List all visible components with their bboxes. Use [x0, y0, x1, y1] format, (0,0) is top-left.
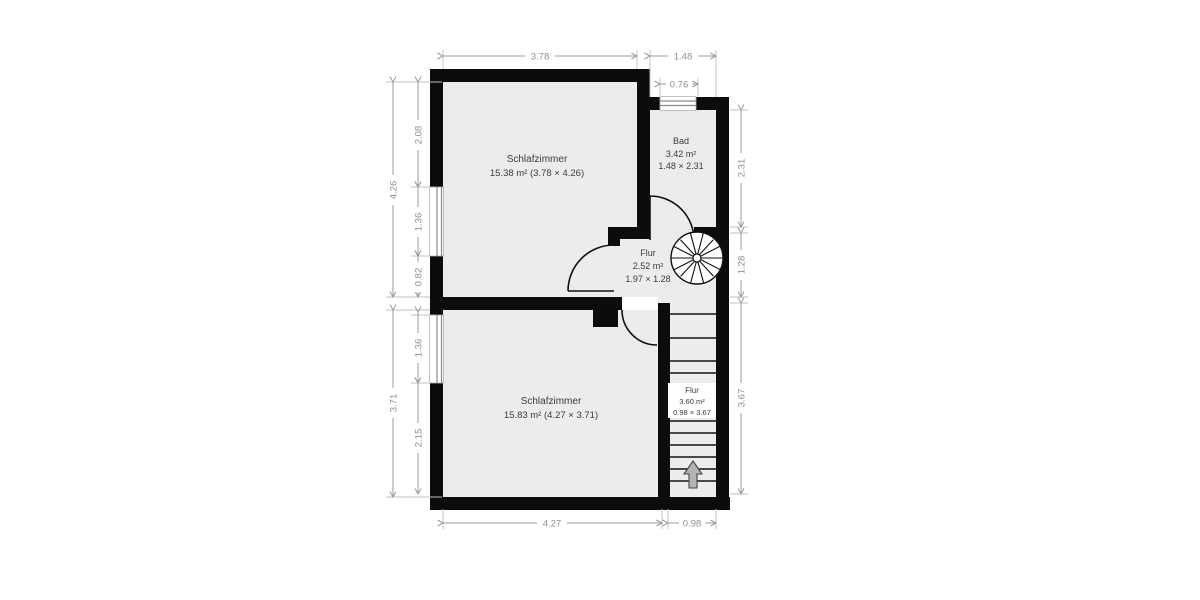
label-bad-dims: 1.48 × 2.31	[658, 161, 703, 171]
dim-left-bottom-segment: 2.15	[414, 429, 425, 448]
label-flur-stairs-dims: 0.98 × 3.67	[673, 408, 711, 417]
dim-bottom-stairs-width: 0.98	[683, 519, 702, 530]
dim-bad-window-width: 0.76	[670, 80, 689, 91]
label-schlafzimmer-bottom-details: 15.83 m² (4.27 × 3.71)	[504, 410, 598, 421]
dim-left-outer-top: 4.26	[389, 181, 400, 200]
window-left-bottom	[430, 315, 444, 383]
label-schlafzimmer-top-details: 15.38 m² (3.78 × 4.26)	[490, 168, 584, 179]
dim-left-window-top: 1.36	[414, 213, 425, 232]
label-flur-dims: 1.97 × 1.28	[625, 274, 670, 284]
label-flur-stairs-name: Flur	[685, 386, 699, 395]
dim-top-room-width: 3.78	[531, 52, 550, 63]
chimney-block	[593, 300, 618, 327]
dim-left-window-bottom: 1.36	[414, 339, 425, 358]
floorplan-page: Schlafzimmer 15.38 m² (3.78 × 4.26) Bad …	[0, 0, 1200, 600]
floor-schlafzimmer-top	[443, 82, 637, 297]
dim-right-bad-height: 2.31	[737, 159, 748, 178]
label-flur-stairs-area: 3.60 m²	[679, 397, 705, 406]
dim-left-top-segment: 2.08	[414, 126, 425, 145]
floorplan-drawing: Schlafzimmer 15.38 m² (3.78 × 4.26) Bad …	[0, 0, 1200, 600]
dim-right-flur-height: 1.28	[737, 256, 748, 275]
label-bad-name: Bad	[673, 136, 689, 146]
label-schlafzimmer-bottom-name: Schlafzimmer	[521, 396, 582, 407]
label-bad-area: 3.42 m²	[666, 149, 697, 159]
window-left-top	[430, 187, 444, 256]
dim-bad-width: 1.48	[674, 52, 693, 63]
label-flur-area: 2.52 m²	[633, 261, 664, 271]
dim-right-stairs-height: 3.67	[737, 389, 748, 408]
spiral-staircase-icon	[671, 232, 723, 284]
label-flur-name: Flur	[640, 248, 656, 258]
dim-left-small-segment: 0.82	[414, 268, 425, 287]
dim-bottom-room-width: 4.27	[543, 519, 562, 530]
window-bad	[660, 97, 696, 111]
dim-left-outer-bottom: 3.71	[389, 394, 400, 413]
label-schlafzimmer-top-name: Schlafzimmer	[507, 154, 568, 165]
